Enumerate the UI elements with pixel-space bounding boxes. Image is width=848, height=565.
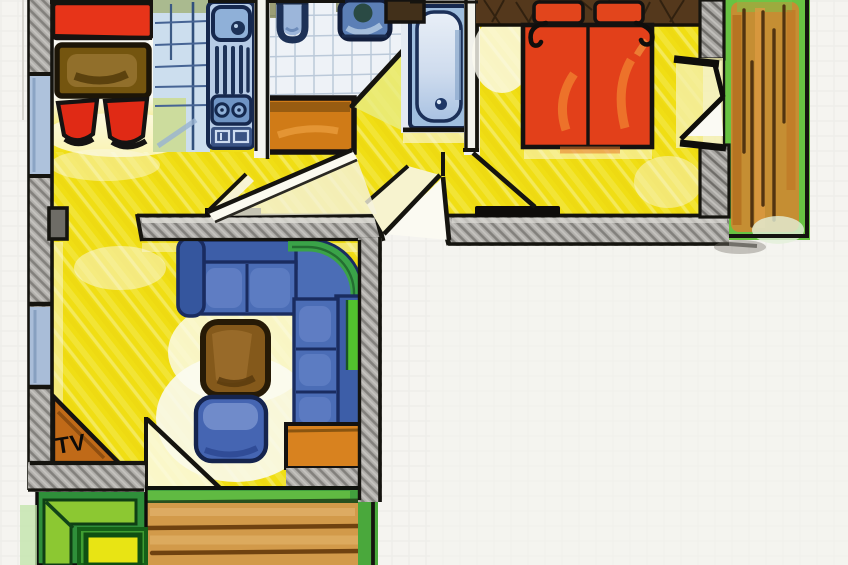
svg-text:TV: TV <box>54 428 88 458</box>
